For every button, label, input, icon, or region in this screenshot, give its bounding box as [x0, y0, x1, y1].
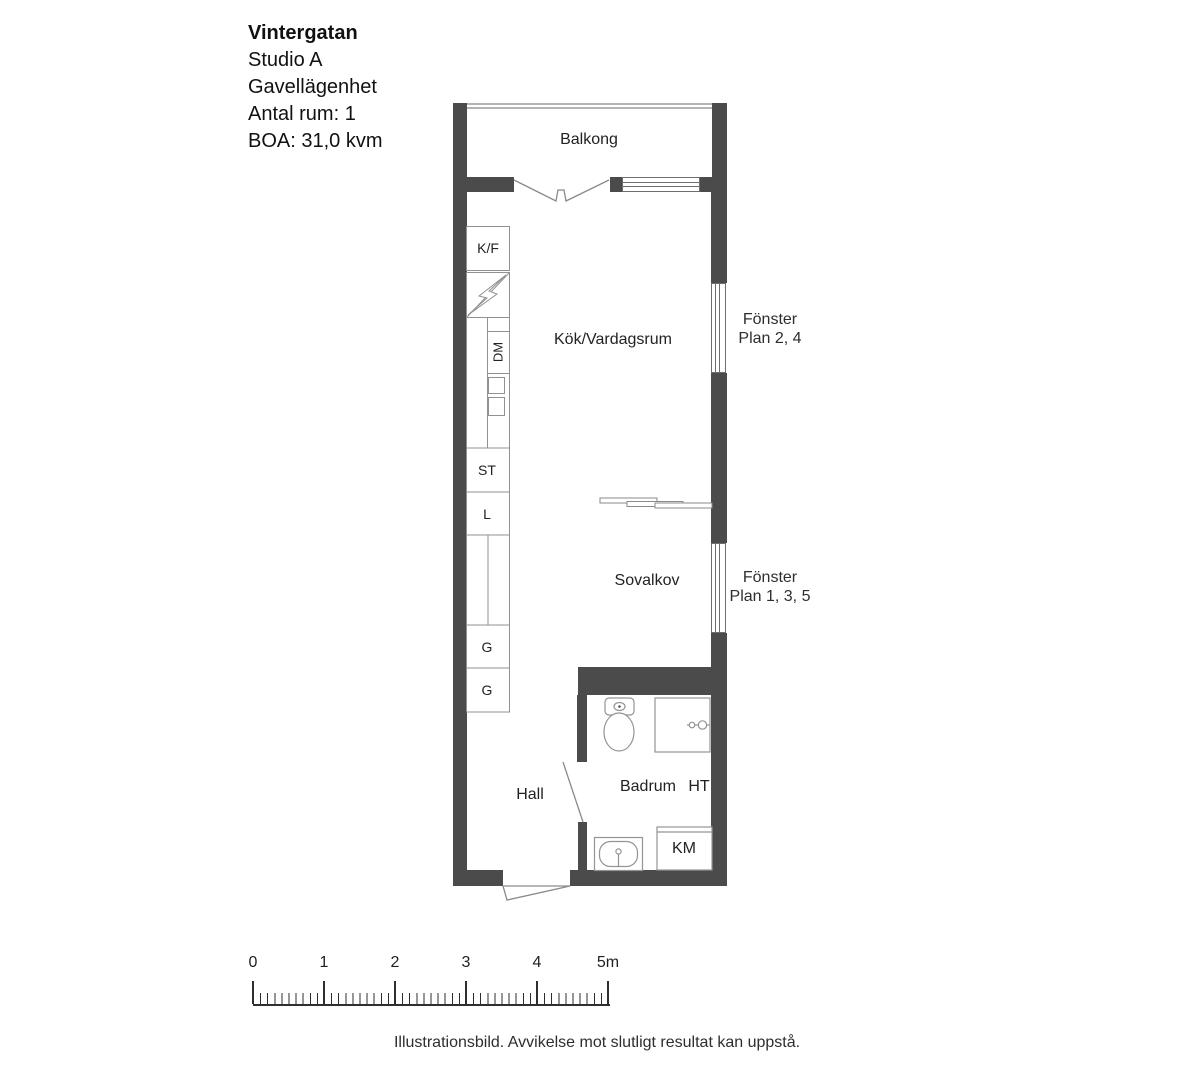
entry-door	[503, 886, 570, 900]
label-wardrobe-lower: G	[482, 682, 493, 698]
project-name: Vintergatan	[248, 20, 383, 47]
wall-right-lower	[711, 633, 727, 886]
title-line-studio: Studio A	[248, 47, 383, 74]
label-washer: KM	[672, 840, 696, 858]
balcony-door	[514, 180, 609, 201]
scale-label: 3	[462, 954, 471, 972]
scale-major-tick	[252, 981, 254, 1004]
annotation-window-lower-line1: Fönster	[730, 568, 811, 587]
wall-left	[453, 177, 467, 886]
scale-major-tick	[536, 981, 538, 1004]
scale-label: 0	[249, 954, 258, 972]
counter-run	[467, 318, 510, 449]
annotation-window-upper-line2: Plan 2, 4	[738, 329, 801, 348]
room-label-sleeping-alcove: Sovalkov	[615, 572, 680, 590]
windows	[623, 178, 726, 633]
title-block: Vintergatan Studio A Gavellägenhet Antal…	[248, 20, 383, 155]
wall-balcony-left	[453, 103, 467, 178]
wall-bathroom-top	[578, 667, 711, 695]
annotation-window-lower: Fönster Plan 1, 3, 5	[730, 568, 811, 606]
title-line-rooms: Antal rum: 1	[248, 101, 383, 128]
scale-major-tick	[394, 981, 396, 1004]
wardrobe-tall-unit	[467, 535, 510, 625]
scale-ruler: 012345m	[253, 980, 610, 1006]
scale-label: 1	[320, 954, 329, 972]
annotation-window-upper-line1: Fönster	[738, 310, 801, 329]
scale-label: 4	[533, 954, 542, 972]
wall-bottom-right	[570, 870, 727, 886]
wall-front-pier	[610, 177, 623, 192]
title-line-type: Gavellägenhet	[248, 74, 383, 101]
scale-major-tick	[323, 981, 325, 1004]
disclaimer-text: Illustrationsbild. Avvikelse mot slutlig…	[394, 1034, 800, 1052]
label-cleaning-cabinet: ST	[478, 462, 496, 478]
window-lower	[712, 544, 726, 633]
sink-icon	[595, 838, 643, 871]
scale-major-tick	[607, 981, 609, 1004]
wall-bathroom-left-lower	[578, 822, 587, 870]
shower-icon	[655, 698, 710, 752]
annotation-window-upper: Fönster Plan 2, 4	[738, 310, 801, 348]
sink-basin-1	[489, 378, 505, 394]
wall-right-upper	[711, 192, 727, 283]
label-fridge-freezer: K/F	[477, 240, 499, 256]
label-towel-dryer: HT	[688, 778, 709, 796]
floorplan-drawing	[0, 0, 1200, 1066]
wall-balcony-right	[712, 103, 727, 178]
scale-label: 5m	[597, 954, 619, 972]
scale-minor-ticks	[253, 993, 610, 1004]
room-label-hall: Hall	[516, 786, 544, 804]
floorplan-page: Vintergatan Studio A Gavellägenhet Antal…	[0, 0, 1200, 1066]
balcony-railing	[467, 104, 712, 108]
wall-front-right	[700, 177, 727, 192]
sliding-partition	[600, 498, 712, 508]
annotation-window-lower-line2: Plan 1, 3, 5	[730, 587, 811, 606]
toilet-icon	[604, 698, 634, 751]
electrical-cabinet	[467, 273, 510, 318]
wall-bathroom-left-upper	[577, 695, 587, 762]
sliding-panel-3	[655, 503, 712, 508]
wall-bottom-left	[453, 870, 503, 886]
label-dishwasher: DM	[491, 342, 506, 362]
label-linen-cabinet: L	[483, 506, 491, 522]
room-label-bathroom: Badrum	[620, 778, 676, 796]
room-label-kitchen-living: Kök/Vardagsrum	[554, 331, 672, 349]
title-line-area: BOA: 31,0 kvm	[248, 128, 383, 155]
scale-label: 2	[391, 954, 400, 972]
room-label-balcony: Balkong	[560, 131, 618, 149]
scale-major-tick	[465, 981, 467, 1004]
wall-right-middle	[711, 373, 727, 543]
balcony-window	[623, 178, 700, 192]
window-upper	[712, 284, 726, 373]
sink-basin-2	[489, 398, 505, 416]
label-wardrobe-upper: G	[482, 639, 493, 655]
bathroom-door	[563, 762, 583, 822]
